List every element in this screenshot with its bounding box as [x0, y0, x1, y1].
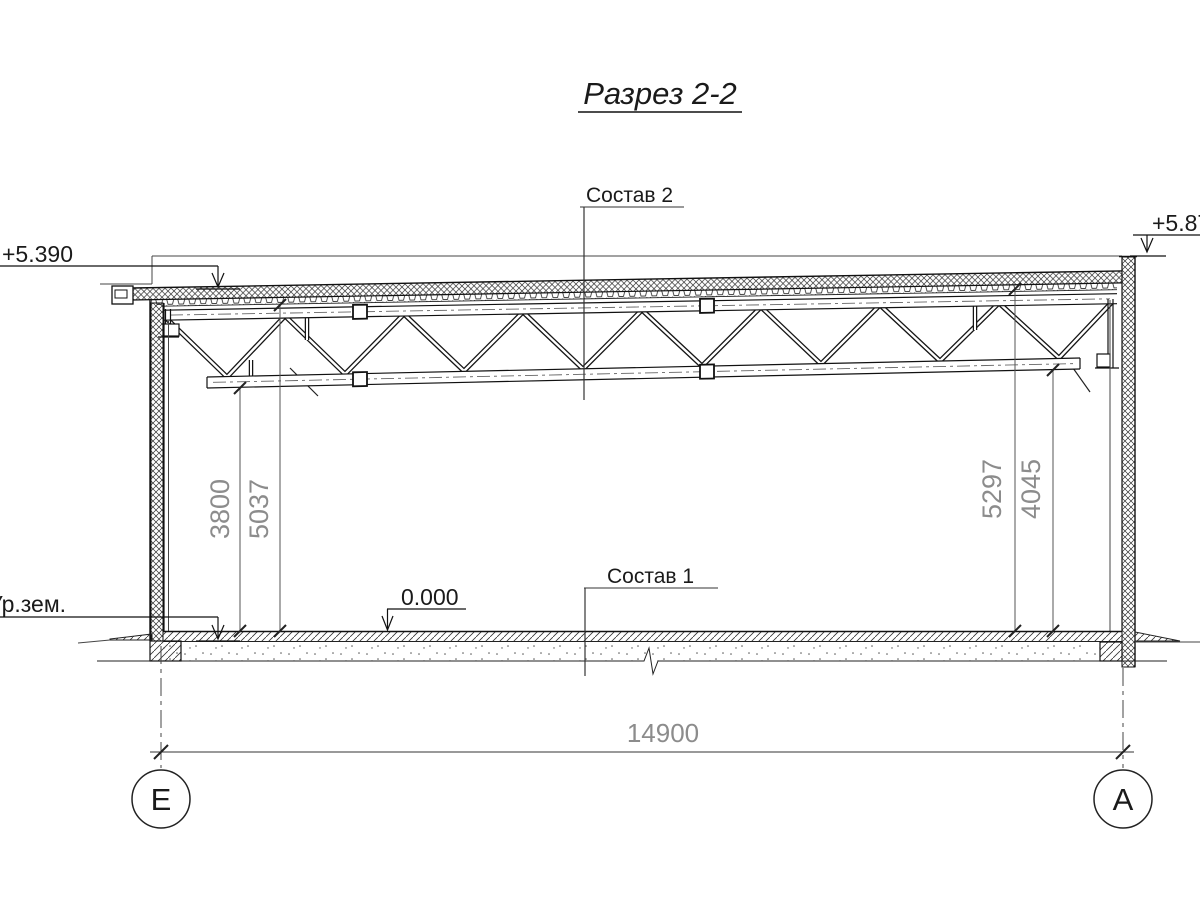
chord-splice-plate: [353, 372, 367, 386]
axis-letter-left: Е: [151, 782, 172, 817]
roof-fascia-left: [112, 286, 133, 304]
floor-base-stipple: [163, 642, 1100, 661]
axis-bubble-left: Е: [132, 770, 190, 828]
dim-right-roof-deck: 5297: [977, 459, 1007, 519]
level-value: Ур.зем.: [0, 591, 66, 617]
right-footing: [1100, 642, 1122, 661]
dim-left-bottom-chord: 3800: [205, 479, 235, 539]
dim-right-bottom-chord: 4045: [1016, 459, 1046, 519]
left-footing: [150, 641, 181, 661]
paper-background: [0, 0, 1200, 900]
chord-splice-plate: [353, 305, 367, 319]
axis-letter-right: А: [1113, 782, 1134, 817]
page-title: Разрез 2-2: [583, 76, 737, 111]
drawing-title: Разрез 2-2: [578, 76, 742, 112]
level-value: +5.870: [1152, 210, 1200, 236]
chord-splice-plate: [700, 364, 714, 378]
leader-label: Состав 2: [586, 184, 673, 207]
level-value: +5.390: [2, 241, 73, 267]
span-value: 14900: [627, 718, 699, 748]
chord-splice-plate: [700, 299, 714, 313]
section-drawing: Разрез 2-2: [0, 0, 1200, 900]
leader-label: Состав 1: [607, 565, 694, 588]
dim-left-roof-deck: 5037: [244, 479, 274, 539]
axis-bubble-right: А: [1094, 770, 1152, 828]
level-value: 0.000: [401, 584, 459, 610]
floor-screed-hatch: [163, 632, 1122, 642]
